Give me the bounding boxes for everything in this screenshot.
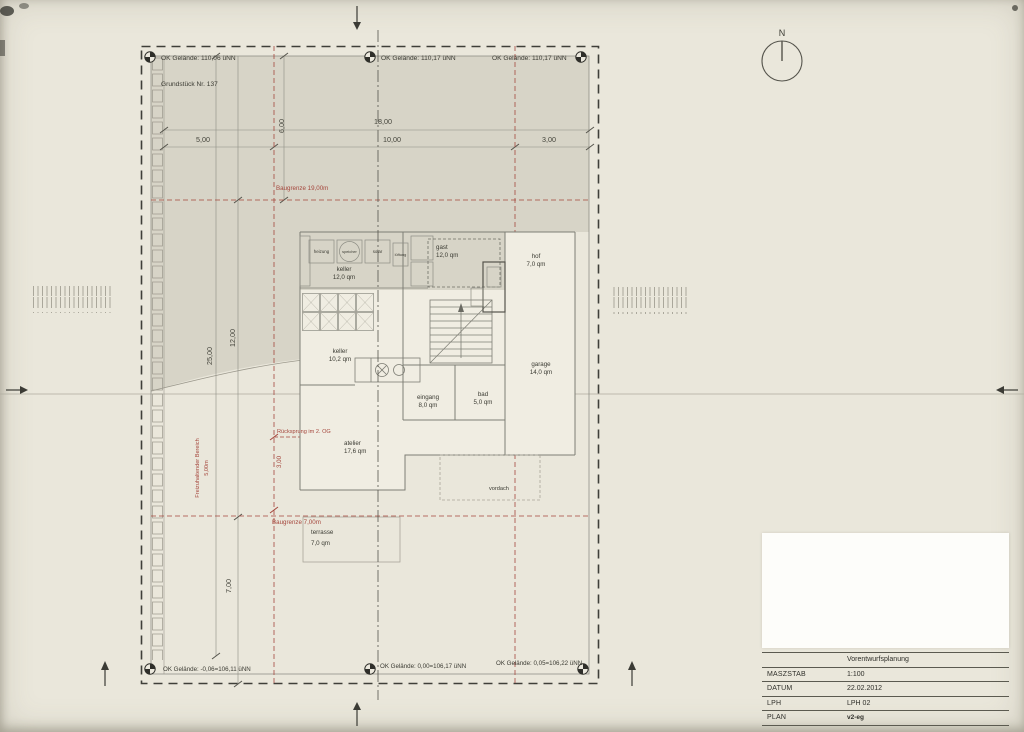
- room-label-eingang: eingang: [417, 394, 440, 401]
- room-label-bad: bad: [478, 391, 489, 398]
- room-label-keller1: keller: [337, 266, 352, 273]
- baugrenze-bottom-label: Baugrenze 7,00m: [272, 519, 321, 526]
- titleblock-row-datum: DATUM 22.02.2012: [762, 682, 1009, 697]
- dim-seg-mid: 10,00: [383, 135, 401, 144]
- maszstab-value: 1:100: [845, 671, 1009, 678]
- room-label-terrasse: terrasse: [311, 529, 334, 536]
- dim-total-width: 18,00: [374, 117, 392, 126]
- titleblock-row-plan: PLAN v2-eg: [762, 711, 1009, 726]
- room-area-garage: 14,0 qm: [530, 369, 552, 376]
- north-indicator: N: [762, 28, 802, 81]
- titleblock-title-value: Vorentwurfsplanung: [845, 656, 1009, 663]
- survey-label-top-mid: OK Gelände: 110,17 üNN: [381, 55, 456, 62]
- keepout-label-line2: 5,00m: [204, 460, 210, 476]
- room-area-bad: 5,0 qm: [474, 399, 493, 406]
- room-area-atelier: 17,6 qm: [344, 448, 366, 455]
- retaining-wall-band: [151, 56, 164, 660]
- room-label-hof: hof: [532, 253, 541, 260]
- titleblock-row-lph: LPH LPH 02: [762, 697, 1009, 712]
- room-label-gast: gast: [436, 244, 448, 251]
- datum-value: 22.02.2012: [845, 685, 1009, 692]
- room-label-vordach: vordach: [489, 486, 509, 492]
- datum-label: DATUM: [762, 685, 845, 692]
- vordach-outline: [440, 455, 540, 500]
- terrain-hatch-right: [612, 287, 690, 314]
- maszstab-label: MASZSTAB: [762, 671, 845, 678]
- setback-dim-label: 3,00: [276, 455, 283, 468]
- room-label-speicher: speicher: [342, 249, 357, 254]
- room-label-heizung: heizung: [314, 249, 330, 254]
- survey-label-bottom-right: OK Gelände: 0,05=106,22 üNN: [496, 660, 582, 667]
- terrain-hatch-left: [30, 286, 112, 313]
- room-area-keller2: 10,2 qm: [329, 356, 351, 363]
- scan-artifacts: [0, 3, 1018, 56]
- dim-top-offset: 6,00: [277, 119, 286, 133]
- titleblock-drawing-area: [762, 533, 1009, 648]
- dim-seg-right: 3,00: [542, 135, 556, 144]
- titleblock-row-maszstab: MASZSTAB 1:100: [762, 668, 1009, 683]
- room-area-gast: 12,0 qm: [436, 252, 458, 259]
- baugrenze-top-label: Baugrenze 19,00m: [276, 185, 328, 192]
- shelves: [302, 293, 374, 331]
- parcel-number-label: Grundstück Nr. 137: [161, 81, 218, 88]
- room-label-garage: garage: [531, 361, 551, 368]
- room-area-eingang: 8,0 qm: [419, 402, 438, 409]
- room-label-atelier: atelier: [344, 440, 361, 447]
- lph-label: LPH: [762, 700, 845, 707]
- room-label-keller2: keller: [333, 348, 348, 355]
- plan-value: v2-eg: [845, 714, 1009, 721]
- keepout-label-line1: Freizuhaltender Bereich: [195, 438, 201, 497]
- titleblock-row-title: Vorentwurfsplanung: [762, 653, 1009, 668]
- titleblock-table: Vorentwurfsplanung MASZSTAB 1:100 DATUM …: [762, 652, 1009, 726]
- north-label: N: [779, 28, 786, 38]
- room-label-lueftung: lüftung: [395, 252, 407, 257]
- plan-label: PLAN: [762, 714, 845, 721]
- dim-depth-upper: 12,00: [228, 329, 237, 347]
- survey-label-top-right: OK Gelände: 110,17 üNN: [492, 55, 567, 62]
- dim-depth-lower: 7,00: [224, 579, 233, 593]
- room-area-keller1: 12,0 qm: [333, 274, 355, 281]
- scanned-site-plan: N OK Gelände: 110,06 üNN OK Gelände: 110…: [0, 0, 1024, 732]
- room-area-hof: 7,0 qm: [527, 261, 546, 268]
- ruecksprung-label: Rücksprung im 2. OG: [277, 429, 331, 435]
- survey-label-bottom-left: OK Gelände: -0,06=106,11 üNN: [163, 666, 251, 673]
- dim-depth-total: 25,00: [205, 347, 214, 365]
- survey-label-bottom-mid: OK Gelände: 0,00=106,17 üNN: [380, 663, 466, 670]
- dim-seg-left: 5,00: [196, 135, 210, 144]
- lph-value: LPH 02: [845, 700, 1009, 707]
- titleblock: Vorentwurfsplanung MASZSTAB 1:100 DATUM …: [762, 533, 1009, 726]
- room-area-terrasse: 7,0 qm: [311, 540, 330, 547]
- survey-label-top-left: OK Gelände: 110,06 üNN: [161, 55, 236, 62]
- room-label-solar: solar: [373, 249, 383, 254]
